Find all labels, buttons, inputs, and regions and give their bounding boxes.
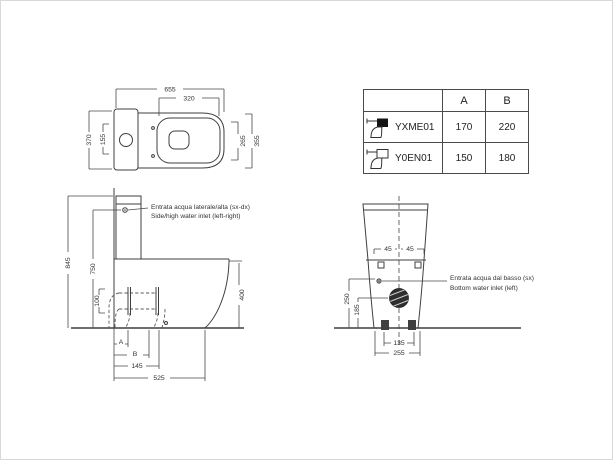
bowl-front-curve: [205, 259, 229, 328]
note-italian: Entrata acqua dal basso (sx): [450, 275, 534, 282]
fixing-foot: [381, 320, 389, 330]
dim-total-length: 655: [116, 86, 224, 112]
col-header-b: B: [486, 90, 529, 112]
leader-line: [128, 208, 148, 210]
dim-label: 400: [239, 289, 246, 301]
table-corner-cell: [364, 90, 443, 112]
dim-outlet-a: A: [114, 330, 128, 347]
dim-label: 655: [164, 86, 176, 93]
pipe-flanges: [128, 287, 159, 315]
cistern-front: [363, 204, 428, 260]
seat-bolt: [378, 262, 384, 268]
model-name: YXME01: [395, 122, 434, 133]
dim-bowl-height: 400: [229, 261, 246, 328]
value-b: 180: [486, 143, 529, 174]
toilet-outline-tank-icon: [366, 147, 392, 170]
water-inlet-dot: [124, 209, 126, 211]
top-view-drawing: 655 320 370 155 265 355: [56, 81, 268, 185]
dim-tank-inner: 155: [100, 124, 109, 154]
value-a: 170: [443, 112, 486, 143]
bowl-left-side: [368, 260, 374, 328]
seat-bolt: [415, 262, 421, 268]
dim-label: 155: [100, 134, 107, 146]
dim-seat-width-outer: 355: [245, 114, 261, 168]
note-italian: Entrata acqua laterale/alta (sx-dx): [151, 204, 250, 211]
col-header-a: A: [443, 90, 486, 112]
dim-label: 135: [393, 340, 405, 347]
table-header-row: A B: [364, 90, 529, 112]
dim-label: 45: [406, 246, 414, 253]
front-view-drawing: 45 45 Entrata acqua dal basso (sx) Botto…: [326, 191, 571, 371]
side-inlet-callout: Entrata acqua laterale/alta (sx-dx) Side…: [123, 204, 250, 220]
dim-label: 145: [131, 363, 143, 370]
drain-hole: [386, 287, 412, 309]
cistern-side: [116, 196, 141, 259]
note-english: Bottom water inlet (left): [450, 285, 518, 292]
flush-button: [120, 134, 133, 147]
bowl-top: [138, 113, 224, 168]
side-view-drawing: Entrata acqua laterale/alta (sx-dx) Side…: [51, 181, 296, 393]
dim-label: 250: [344, 293, 351, 305]
toilet-filled-tank-icon: [366, 116, 392, 139]
flush-well: [169, 131, 189, 149]
table-row: YXME01 170 220: [364, 112, 529, 143]
dim-label: 100: [94, 295, 101, 307]
dim-label: 370: [86, 134, 93, 146]
dim-total-height: 845: [65, 196, 113, 328]
spec-table: A B YXME01 170: [363, 89, 529, 174]
dim-label: 185: [354, 304, 361, 316]
dim-label: 525: [153, 375, 165, 382]
dim-label: A: [119, 339, 124, 346]
dim-outlet-height: 100: [94, 289, 105, 313]
dim-label: 255: [393, 350, 405, 357]
toilet-front-outline: [363, 204, 428, 328]
outlet-marker: [165, 322, 168, 325]
technical-drawing-sheet: 655 320 370 155 265 355: [0, 0, 613, 460]
dim-label: 320: [183, 95, 195, 102]
dim-label: 355: [254, 135, 261, 147]
hinge-hole: [152, 155, 155, 158]
value-b: 220: [486, 112, 529, 143]
dim-label: B: [133, 351, 138, 358]
cistern-top: [114, 109, 138, 170]
bowl-right-side: [418, 260, 424, 328]
fixing-foot: [408, 320, 416, 330]
note-english: Side/high water inlet (left-right): [151, 213, 240, 220]
toilet-top-outline: [114, 109, 224, 170]
dim-label: 750: [90, 263, 97, 275]
dim-label: 265: [240, 135, 247, 147]
table-row: Y0EN01 150 180: [364, 143, 529, 174]
dim-label: 45: [384, 246, 392, 253]
dim-label: 845: [65, 257, 72, 269]
hinge-hole: [152, 127, 155, 130]
dim-seat-width-inner: 265: [231, 122, 247, 160]
value-a: 150: [443, 143, 486, 174]
outlet-pipework-hidden: [109, 287, 168, 328]
water-inlet-icon: [377, 279, 381, 283]
model-name: Y0EN01: [395, 153, 432, 164]
